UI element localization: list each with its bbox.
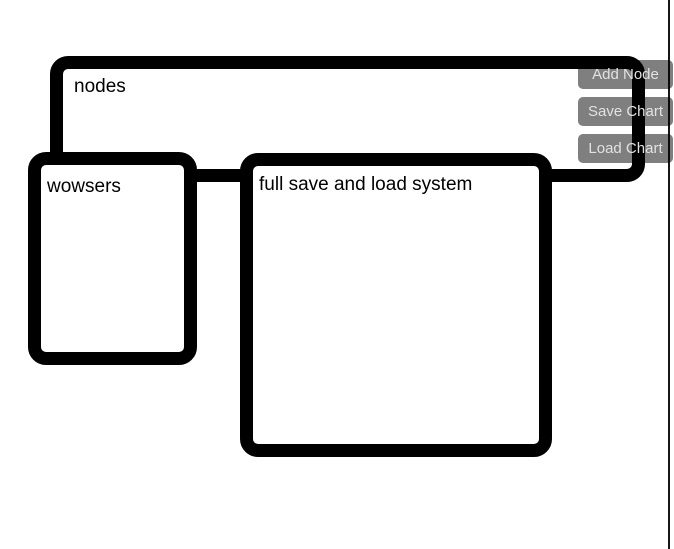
node-full-save-load-system[interactable]: full save and load system [240,153,552,457]
node-label: wowsers [47,176,121,198]
load-chart-button[interactable]: Load Chart [578,134,673,163]
editor-canvas[interactable]: nodes wowsers full save and load system … [0,0,674,549]
save-chart-button[interactable]: Save Chart [578,97,673,126]
node-label: full save and load system [259,174,472,196]
toolbar: Add Node Save Chart Load Chart [578,60,673,163]
add-node-button[interactable]: Add Node [578,60,673,89]
node-wowsers[interactable]: wowsers [28,152,197,365]
group-node-label: nodes [74,76,126,98]
